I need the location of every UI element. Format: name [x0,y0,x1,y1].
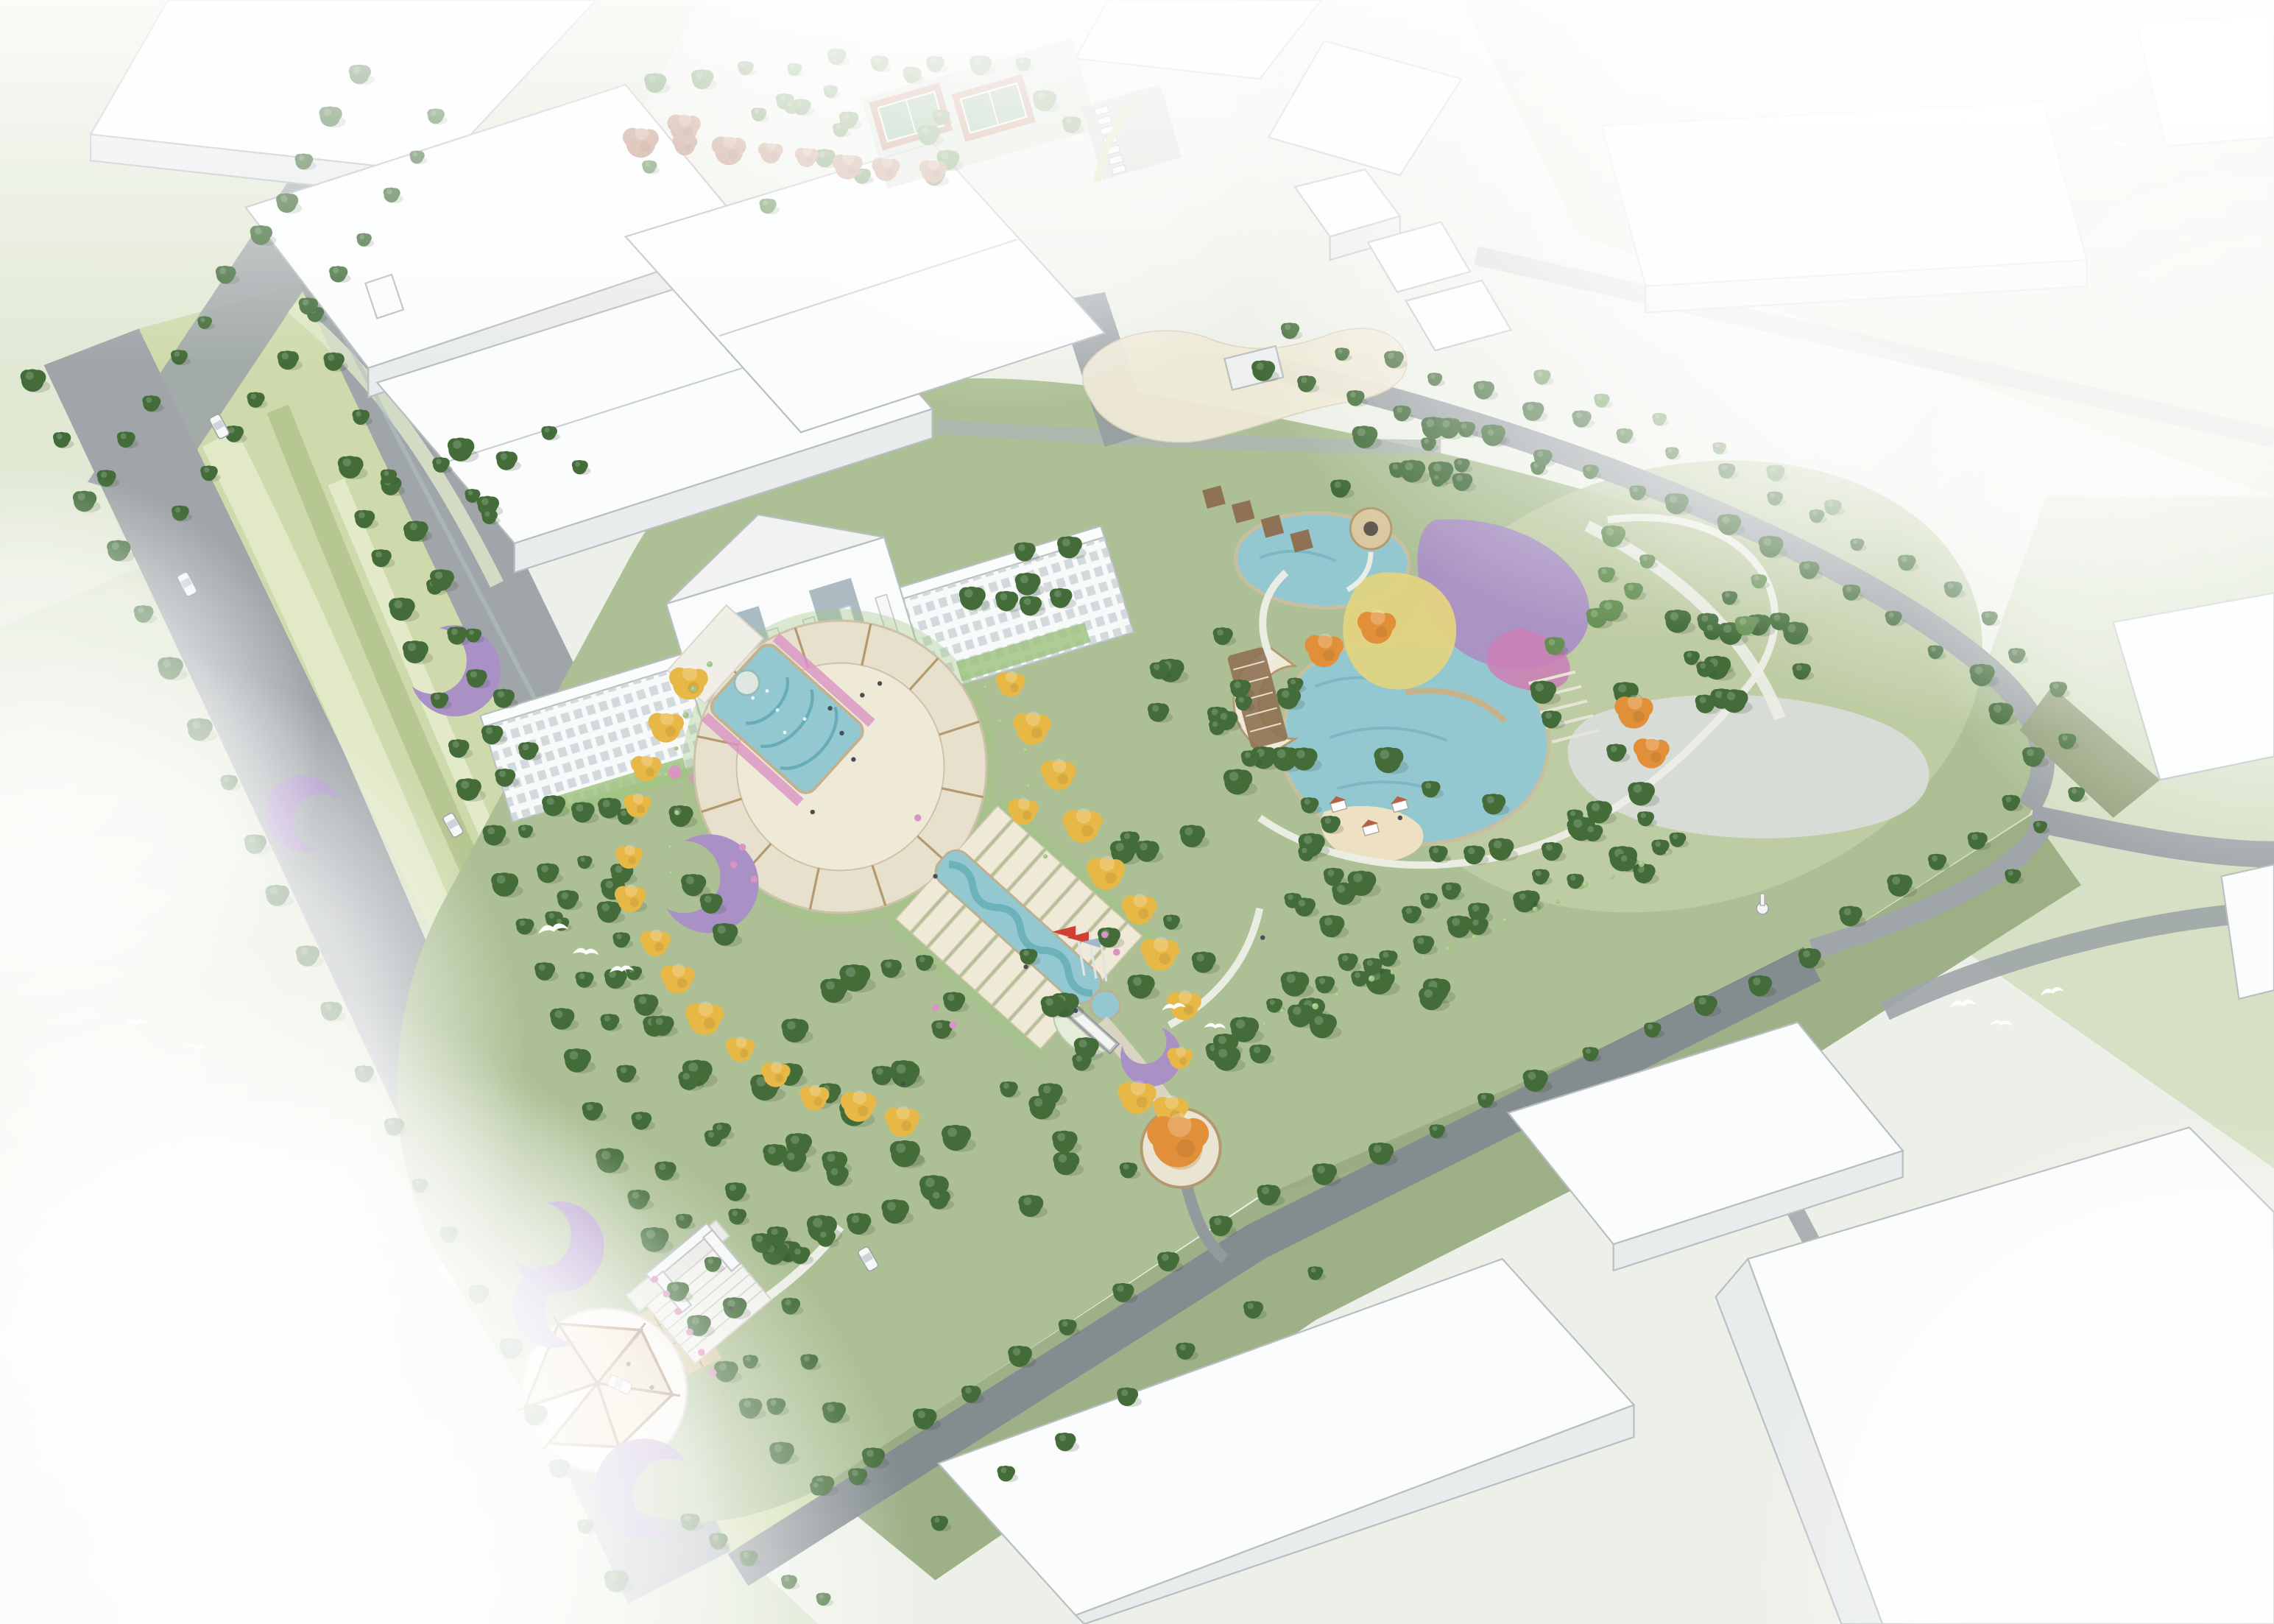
fog-overlays [0,0,2274,1624]
veil [0,0,2274,1624]
site-plan-rendering [0,0,2274,1624]
rendering-stage [0,0,2274,1624]
